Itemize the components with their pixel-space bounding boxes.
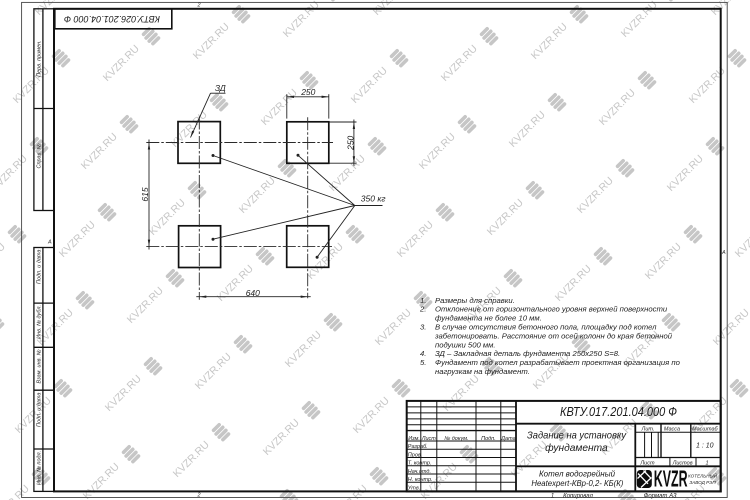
svg-text:№ докум.: № докум. [444, 436, 468, 442]
svg-text:КВТУ.026.201.04.000 Ф: КВТУ.026.201.04.000 Ф [64, 14, 160, 24]
svg-text:Масштаб: Масштаб [692, 427, 719, 433]
svg-text:Справ. №: Справ. № [37, 143, 43, 168]
svg-text:фундамента не более 10 мм.: фундамента не более 10 мм. [435, 314, 542, 323]
svg-text:Инв. № дубл.: Инв. № дубл. [37, 305, 43, 339]
svg-text:1.: 1. [420, 296, 426, 305]
svg-text:2: 2 [196, 3, 200, 9]
svg-text:Фундамент под котел разрабатыв: Фундамент под котел разрабатывает проект… [435, 358, 681, 367]
svg-text:1: 1 [705, 460, 708, 466]
svg-text:5.: 5. [420, 358, 426, 367]
svg-text:Нач.отд.: Нач.отд. [408, 469, 431, 475]
svg-text:Дата: Дата [500, 436, 516, 442]
svg-text:Лист: Лист [421, 436, 437, 442]
svg-text:Лит.: Лит. [641, 427, 655, 433]
svg-text:2.: 2. [419, 305, 426, 314]
svg-text:615: 615 [140, 187, 150, 201]
svg-text:ЗД: ЗД [215, 83, 226, 93]
svg-text:Подп.: Подп. [481, 436, 496, 442]
svg-text:350 кг: 350 кг [361, 193, 386, 203]
svg-text:Копировал: Копировал [563, 494, 593, 500]
svg-text:1: 1 [551, 494, 554, 500]
svg-text:Подп. и дата: Подп. и дата [37, 250, 43, 284]
svg-text:Разраб.: Разраб. [408, 444, 428, 450]
svg-text:В случае отсутствия бетонного: В случае отсутствия бетонного пола, площ… [435, 323, 657, 332]
svg-text:Размеры для справки.: Размеры для справки. [435, 296, 515, 305]
svg-text:250: 250 [345, 135, 355, 150]
svg-text:Котел водогрейный: Котел водогрейный [539, 470, 616, 479]
svg-text:КВТУ.017.201.04.000 Ф: КВТУ.017.201.04.000 Ф [560, 405, 677, 419]
svg-text:Задание на установку: Задание на установку [527, 431, 627, 442]
svg-text:КОТЕЛЬНЫЙ: КОТЕЛЬНЫЙ [688, 472, 718, 479]
svg-text:Формат А3: Формат А3 [644, 494, 677, 500]
svg-text:подушки 500 мм.: подушки 500 мм. [435, 340, 496, 349]
svg-text:3.: 3. [420, 323, 426, 332]
svg-text:KVZR: KVZR [654, 466, 688, 492]
svg-text:250: 250 [300, 87, 315, 97]
svg-text:А: А [721, 250, 726, 256]
svg-text:1 : 10: 1 : 10 [696, 443, 714, 450]
svg-text:Пров.: Пров. [408, 452, 423, 458]
svg-text:Инв. № подл.: Инв. № подл. [37, 451, 43, 485]
svg-text:ЗАВОД РЭП: ЗАВОД РЭП [689, 480, 716, 485]
svg-text:Масса: Масса [664, 427, 680, 433]
svg-text:Перв. примен.: Перв. примен. [37, 40, 43, 77]
svg-text:А: А [47, 240, 52, 246]
svg-text:ЗД – Закладная деталь фундамен: ЗД – Закладная деталь фундамента 250х250… [435, 349, 620, 358]
svg-text:4.: 4. [420, 349, 426, 358]
svg-text:Лист: Лист [639, 460, 655, 466]
svg-text:забетонировать. Расстояние от: забетонировать. Расстояние от осей колон… [434, 331, 673, 340]
svg-text:нагрузкам на фундамент.: нагрузкам на фундамент. [435, 367, 530, 376]
svg-text:фундамента: фундамента [545, 442, 608, 454]
svg-text:Подп. и дата: Подп. и дата [37, 393, 43, 427]
svg-text:640: 640 [246, 288, 260, 298]
svg-text:Т. контр.: Т. контр. [408, 461, 432, 467]
svg-text:2: 2 [196, 493, 200, 499]
svg-text:Heatexpert-КВр-0,2- КБ(К): Heatexpert-КВр-0,2- КБ(К) [531, 479, 623, 488]
svg-text:Н. контр.: Н. контр. [408, 477, 433, 483]
svg-text:Отклонение от горизонтального: Отклонение от горизонтального уровня вер… [435, 305, 668, 314]
svg-text:Взам. инв. №: Взам. инв. № [37, 349, 43, 383]
svg-text:Изм.: Изм. [408, 436, 420, 442]
svg-text:Утв.: Утв. [407, 486, 421, 492]
